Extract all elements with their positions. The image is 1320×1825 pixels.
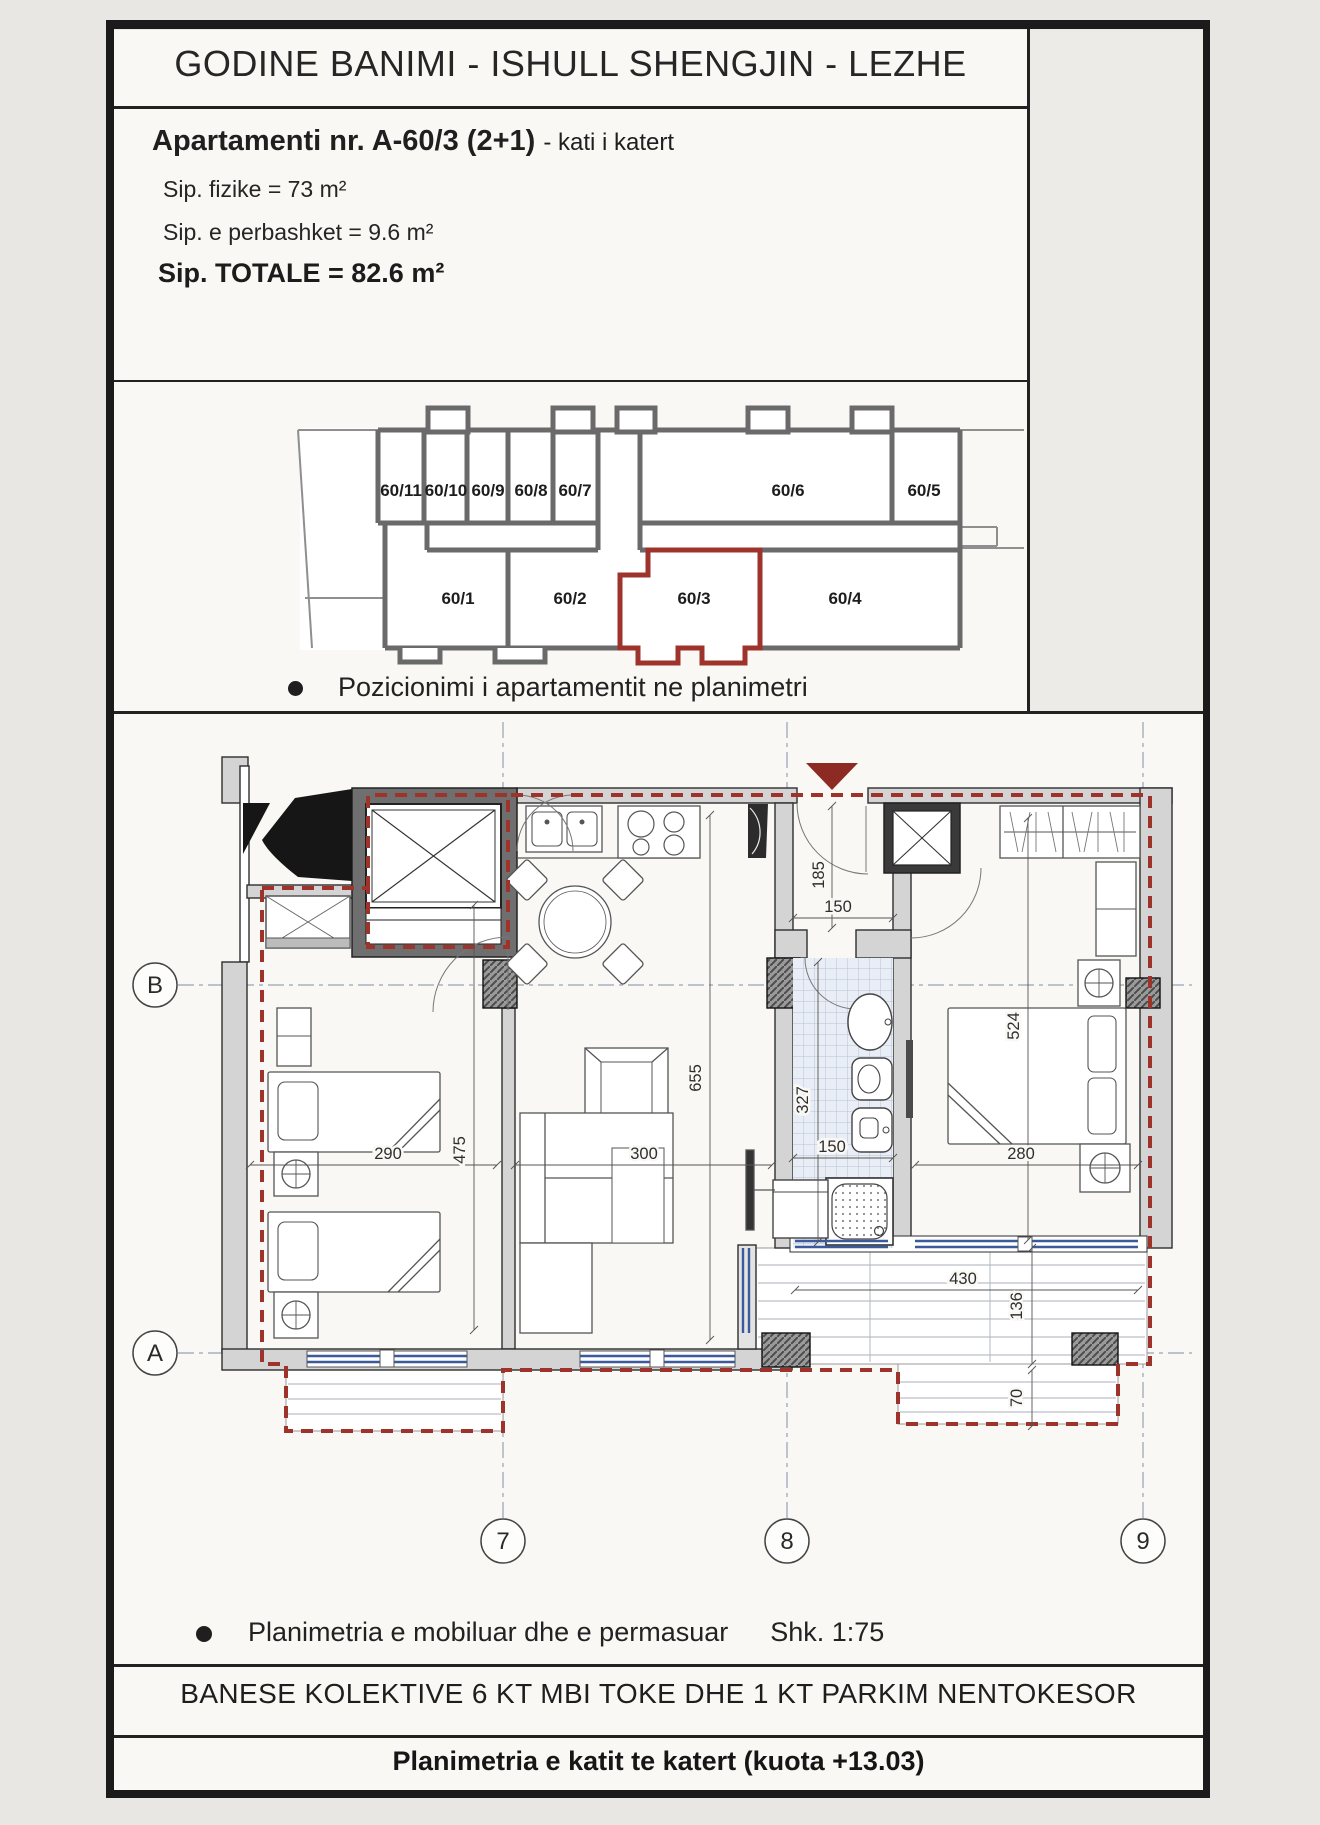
unit-label: 60/8 — [514, 481, 547, 500]
kitchen-sink — [526, 806, 602, 852]
armchair — [585, 1048, 668, 1114]
dim-bath-length: 327 — [794, 1086, 812, 1114]
entrance-marker — [806, 763, 858, 790]
dining-set — [506, 859, 644, 985]
wardrobe — [1000, 806, 1140, 858]
area-total: Sip. TOTALE = 82.6 m² — [158, 258, 444, 289]
axis-label-9: 9 — [1136, 1528, 1149, 1555]
title-divider — [114, 106, 1027, 109]
dim-bedroom2-width: 280 — [1007, 1145, 1035, 1163]
dim-terrace-width: 430 — [949, 1270, 977, 1288]
unit-label: 60/2 — [553, 589, 586, 608]
entry-shaft — [884, 803, 960, 873]
shower — [826, 1178, 893, 1245]
frame-right — [1203, 20, 1210, 1798]
axis-label-7: 7 — [496, 1528, 509, 1555]
axis-label-a: A — [147, 1340, 163, 1367]
stove — [618, 806, 700, 858]
tv — [746, 1150, 754, 1230]
bed — [268, 1212, 440, 1292]
bidet — [852, 1108, 892, 1152]
wall-shelf — [906, 1040, 913, 1118]
sheet-title: GODINE BANIMI - ISHULL SHENGJIN - LEZHE — [114, 43, 1027, 85]
frame-top — [106, 20, 1210, 29]
frame-bottom — [106, 1790, 1210, 1798]
unit-label: 60/5 — [907, 481, 940, 500]
plan-caption: Planimetria e mobiluar dhe e permasuarSh… — [248, 1617, 884, 1648]
nightstand — [1080, 1144, 1130, 1192]
nightstand — [274, 1152, 318, 1196]
dim-bath-width: 150 — [818, 1138, 846, 1156]
info-divider — [114, 380, 1027, 382]
bedroom-1 — [268, 1008, 440, 1338]
dim-bedroom2-length: 524 — [1005, 1012, 1023, 1040]
axis-label-b: B — [147, 972, 163, 999]
balcony — [286, 1364, 503, 1431]
elevator — [352, 788, 517, 957]
dim-living-length: 655 — [687, 1064, 705, 1092]
unit-label: 60/4 — [828, 589, 862, 608]
footer-sheet-line: Planimetria e katit te katert (kuota +13… — [114, 1746, 1203, 1777]
caption-bullet — [288, 681, 303, 696]
fridge — [748, 804, 768, 858]
dining-table — [539, 886, 611, 958]
area-physical: Sip. fizike = 73 m² — [163, 176, 346, 203]
nightstand — [1078, 960, 1120, 1006]
apartment-name: Apartamenti nr. A-60/3 (2+1) — [152, 125, 535, 157]
minimap-building: 60/11 60/10 60/9 60/8 60/7 60/6 60/5 60/… — [298, 408, 1024, 663]
toilet — [852, 1058, 892, 1100]
footer-building-line: BANESE KOLEKTIVE 6 KT MBI TOKE DHE 1 KT … — [114, 1678, 1203, 1710]
bed — [268, 1072, 440, 1152]
dresser — [277, 1008, 311, 1066]
footer-divider-1 — [114, 1664, 1203, 1667]
plan-scale: Shk. 1:75 — [770, 1617, 884, 1647]
dim-terrace-depth: 136 — [1008, 1292, 1026, 1320]
nightstand — [274, 1292, 318, 1338]
bedroom-2 — [948, 806, 1140, 1192]
dim-bedroom1-width: 290 — [374, 1145, 402, 1163]
dim-balcony-depth: 70 — [1008, 1389, 1026, 1407]
unit-label: 60/6 — [771, 481, 804, 500]
position-caption: Pozicionimi i apartamentit ne planimetri — [338, 672, 808, 703]
washing-machine — [773, 1180, 828, 1238]
stairs — [243, 789, 352, 881]
dim-entry-width: 150 — [824, 898, 852, 916]
axis-label-8: 8 — [780, 1528, 793, 1555]
inner-right-border — [1027, 29, 1030, 713]
frame-left — [106, 20, 114, 1798]
floor-plan-drawing: 185 150 655 327 150 290 475 300 280 524 … — [114, 715, 1203, 1620]
living-room — [520, 1048, 775, 1333]
unit-label: 60/7 — [558, 481, 591, 500]
position-minimap: 60/11 60/10 60/9 60/8 60/7 60/6 60/5 60/… — [114, 384, 1027, 713]
unit-label: 60/1 — [441, 589, 474, 608]
dim-bedroom1-length: 475 — [451, 1136, 469, 1164]
dim-living-width: 300 — [630, 1145, 658, 1163]
area-common: Sip. e perbashket = 9.6 m² — [163, 219, 433, 246]
scanned-floorplan-sheet: { "header": { "title": "GODINE BANIMI - … — [0, 0, 1320, 1825]
caption-bullet — [196, 1626, 212, 1642]
double-bed — [948, 1008, 1126, 1144]
kitchen — [517, 804, 768, 858]
unit-label: 60/9 — [471, 481, 504, 500]
unit-label: 60/11 — [380, 481, 422, 500]
shaft-under-stairs — [266, 896, 350, 948]
dim-entry-depth: 185 — [810, 861, 828, 889]
unit-label: 60/3 — [677, 589, 710, 608]
apartment-floor-note: - kati i katert — [543, 129, 674, 156]
apartment-heading: Apartamenti nr. A-60/3 (2+1)- kati i kat… — [152, 125, 674, 158]
right-margin-strip — [1030, 30, 1203, 713]
footer-divider-2 — [114, 1735, 1203, 1738]
unit-label: 60/10 — [425, 481, 468, 500]
plan-caption-text: Planimetria e mobiluar dhe e permasuar — [248, 1617, 728, 1647]
